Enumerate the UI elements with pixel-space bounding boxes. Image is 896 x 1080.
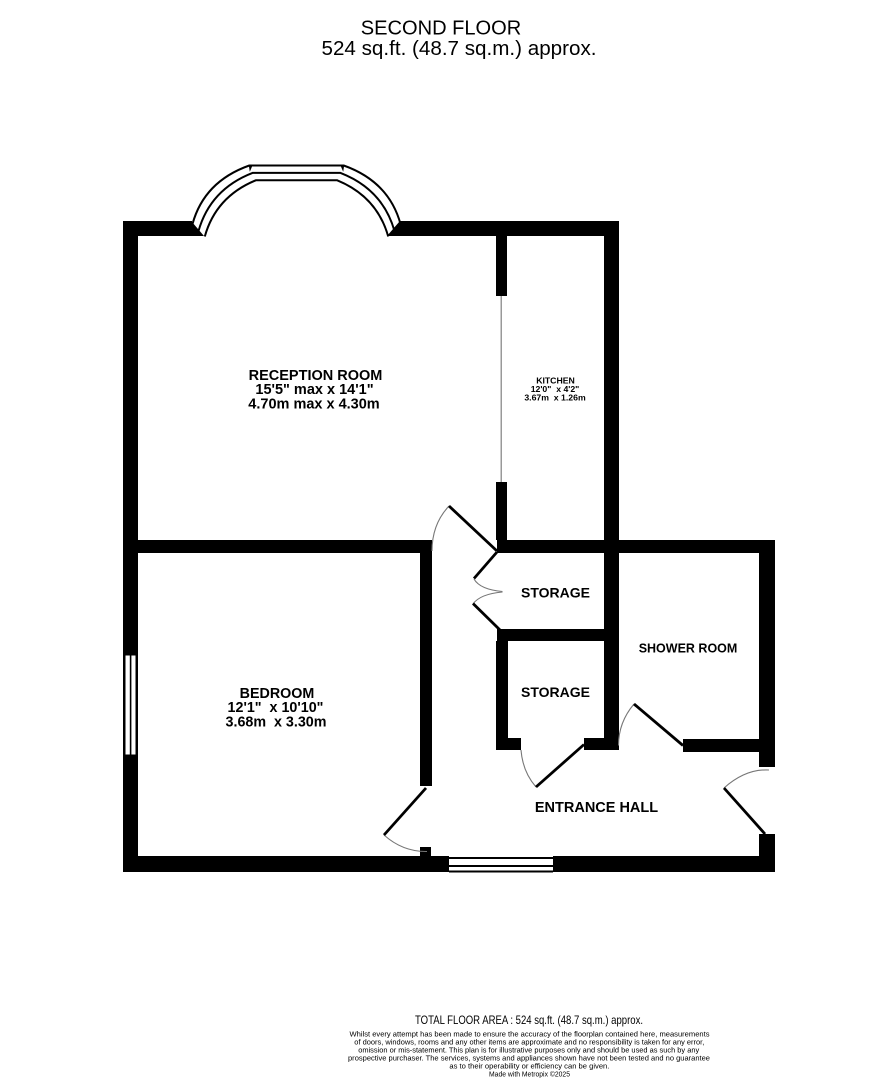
svg-text:SECOND FLOOR: SECOND FLOOR — [361, 18, 522, 40]
svg-text:ENTRANCE HALL: ENTRANCE HALL — [535, 800, 658, 816]
svg-text:Made with Metropix ©2025: Made with Metropix ©2025 — [489, 1070, 570, 1079]
svg-text:524 sq.ft. (48.7 sq.m.) approx: 524 sq.ft. (48.7 sq.m.) approx. — [322, 38, 597, 60]
svg-text:TOTAL FLOOR AREA : 524 sq.ft.: TOTAL FLOOR AREA : 524 sq.ft. (48.7 sq.m… — [415, 1013, 643, 1027]
svg-text:SHOWER ROOM: SHOWER ROOM — [639, 642, 738, 656]
svg-text:4.70m max x 4.30m: 4.70m max x 4.30m — [248, 397, 379, 413]
svg-text:3.68m x 3.30m: 3.68m x 3.30m — [226, 714, 327, 730]
svg-text:3.67m x 1.26m: 3.67m x 1.26m — [524, 392, 586, 402]
svg-text:STORAGE: STORAGE — [521, 584, 590, 600]
svg-text:STORAGE: STORAGE — [521, 684, 590, 700]
